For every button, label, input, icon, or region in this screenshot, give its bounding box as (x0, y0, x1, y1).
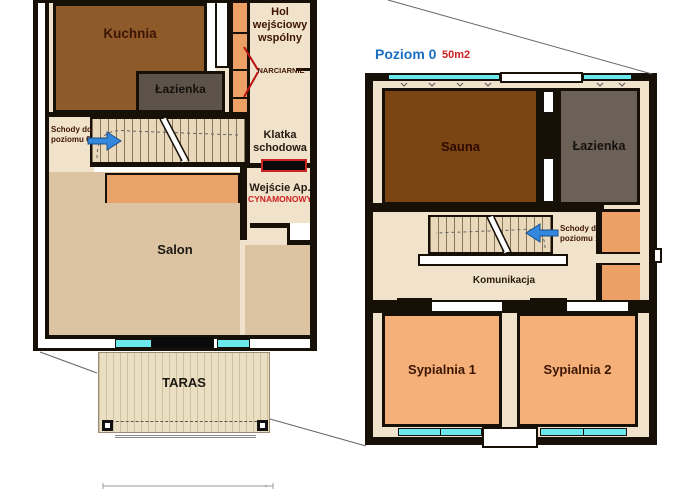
label-hol-line3: wspólny (246, 32, 314, 45)
label-schody-0-line2: poziomu 0 (51, 135, 91, 145)
projection-line (270, 419, 366, 446)
duct-shaft (543, 158, 554, 202)
wall-chunk (373, 300, 397, 313)
salon-feature (105, 173, 240, 203)
duct-shaft (215, 0, 229, 68)
projection-line (388, 0, 652, 74)
label-hol-line2: wejściowy (246, 19, 314, 32)
label-taras: TARAS (134, 375, 234, 391)
wall-bottom-outer (33, 348, 317, 351)
taras-post (102, 420, 113, 431)
wall-chunk (628, 300, 649, 313)
window (583, 74, 632, 80)
bedroom1-door (397, 298, 432, 313)
taras-step-edge (115, 435, 256, 438)
wall (596, 252, 640, 254)
wall-vestibule-bottom (250, 223, 287, 228)
label-narciarnie: NARCIARNIE (250, 66, 312, 75)
apartment-entrance-door (261, 159, 307, 172)
label-sypialnia-2: Sypialnia 2 (517, 362, 638, 378)
taras-edge-dashed (106, 421, 262, 422)
window (115, 339, 152, 348)
label-lazienka-left: Łazienka (136, 82, 225, 96)
wall-left-inner (45, 0, 49, 339)
floor-plan-canvas: Kuchnia Łazienka Hol wejściowy wspólny N… (0, 0, 700, 500)
label-sypialnia-1: Sypialnia 1 (382, 362, 502, 378)
locker-divider (233, 32, 247, 34)
dimension-line (103, 483, 273, 489)
label-salon: Salon (120, 242, 230, 258)
wall-right-outer (310, 0, 317, 351)
label-klatka-line1: Klatka (248, 129, 312, 142)
window (398, 428, 482, 436)
duct-shaft (543, 91, 554, 113)
wall-vestibule-left (240, 163, 247, 240)
wall-left-outer (33, 0, 38, 351)
projection-line (40, 352, 97, 373)
level-area: 50m2 (442, 49, 470, 62)
locker-divider (233, 97, 247, 99)
wall-pier (482, 427, 538, 448)
room-salon-right (245, 245, 310, 335)
window (217, 339, 250, 348)
terrace-door (152, 337, 214, 348)
label-komunikacja: Komunikacja (454, 275, 554, 287)
locker-divider (233, 69, 247, 71)
wall-left (365, 73, 373, 445)
window (540, 428, 627, 436)
label-lazienka-right: Łazienka (558, 139, 640, 154)
window (388, 74, 500, 80)
label-schody-0-line1: Schody do (51, 125, 91, 135)
label-kuchnia: Kuchnia (53, 26, 207, 42)
stairs-right (428, 215, 553, 254)
label-sauna: Sauna (382, 139, 539, 155)
stair-landing (418, 254, 568, 266)
wall-pier (500, 72, 583, 83)
closet-upper (602, 212, 640, 252)
wall-top (33, 0, 317, 3)
wall (373, 203, 604, 212)
closet-lower (602, 265, 640, 301)
wall-chunk (502, 300, 530, 313)
label-klatka-line2: schodowa (248, 142, 312, 155)
wall-notch (653, 248, 662, 263)
label-wejscie-line2: CYNAMONOWY (248, 194, 312, 204)
label-hol-line1: Hol (246, 6, 314, 19)
level-title: Poziom 0 (375, 46, 436, 63)
taras-post (257, 420, 268, 431)
bedroom2-door (530, 298, 567, 313)
stairs-left (90, 117, 247, 164)
